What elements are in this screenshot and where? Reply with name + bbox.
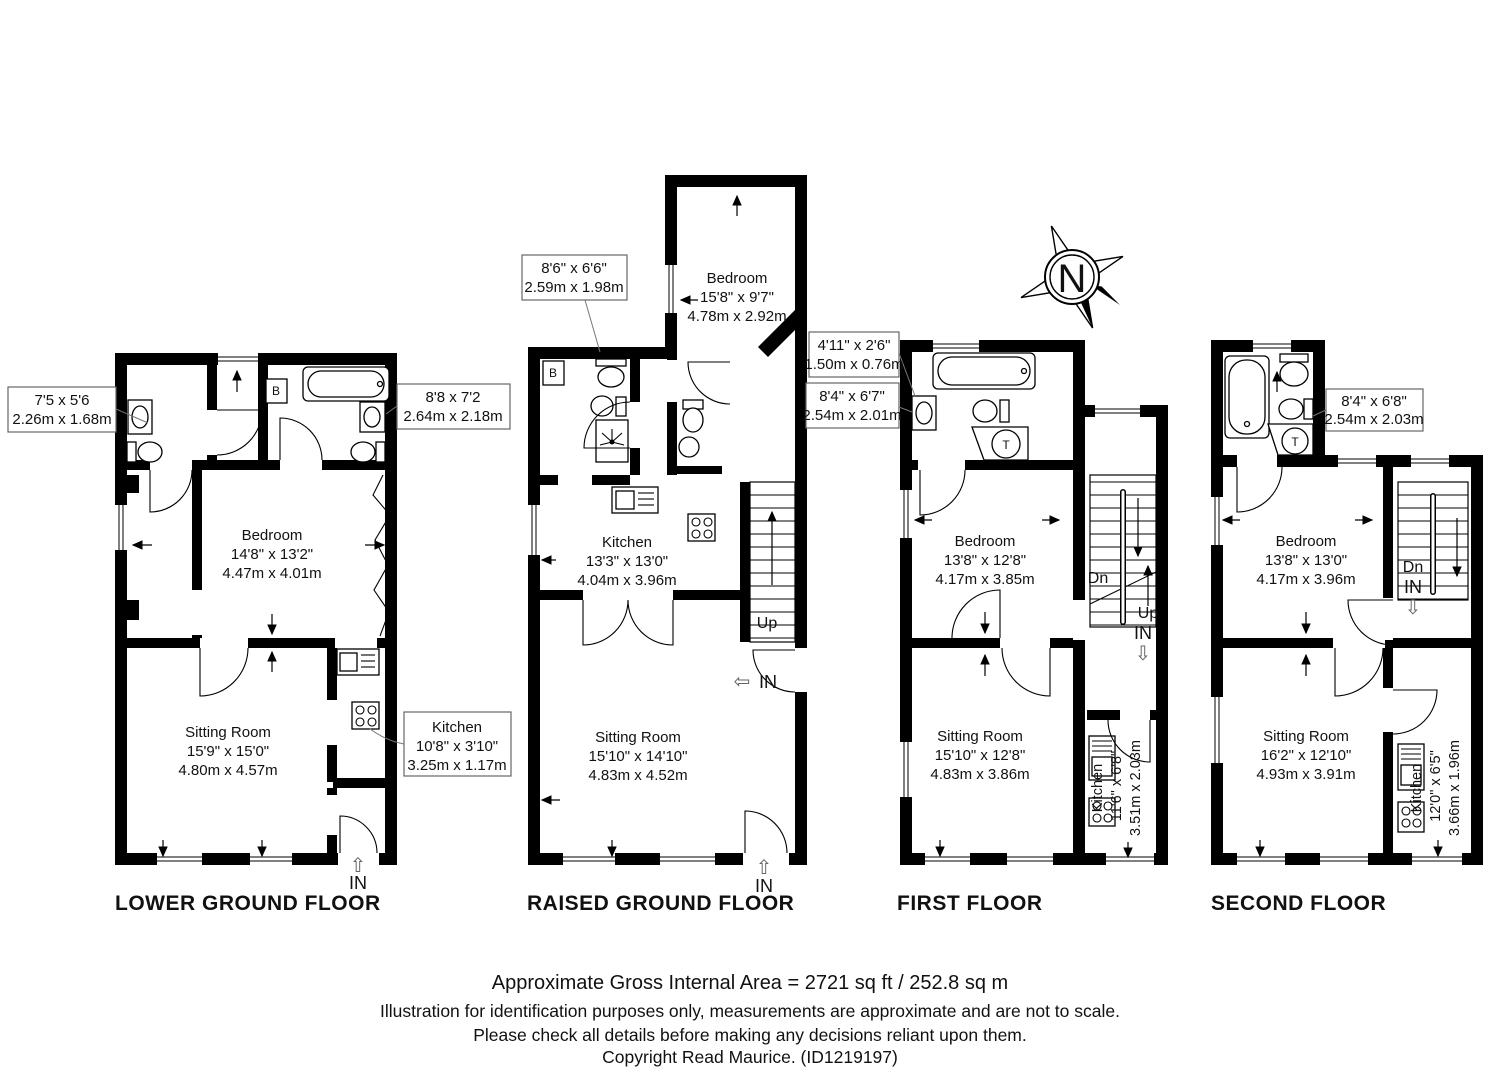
room-name: Kitchen xyxy=(1090,764,1106,812)
hob-icon xyxy=(688,514,715,541)
stairs-up-label: Up xyxy=(757,615,778,632)
stairs-up-label: Up xyxy=(1138,605,1159,622)
callout-imperial: 8'6" x 6'6" xyxy=(541,260,607,277)
sink-icon xyxy=(360,402,385,432)
entrance-arrow-icon: ⇩ xyxy=(1405,595,1422,619)
sink-icon xyxy=(912,396,936,430)
callout-imperial: 7'5 x 5'6 xyxy=(35,392,90,409)
entrance-label: IN xyxy=(1134,623,1152,643)
toilet-icon xyxy=(591,396,626,416)
room-imperial: 16'2" x 12'10" xyxy=(1261,747,1352,764)
callout-metric: 2.54m x 2.01m xyxy=(802,407,901,424)
entrance-side-arrow-icon: ⇦ xyxy=(734,669,751,693)
room-name: Bedroom xyxy=(242,527,303,544)
callout-bath-right: 8'8 x 7'2 2.64m x 2.18m xyxy=(386,384,510,429)
stairs-dn-label: Dn xyxy=(1403,559,1423,576)
room-imperial: 11'6" x 6'8" xyxy=(1109,751,1125,821)
toilet-icon xyxy=(1279,399,1313,419)
tank-label: T xyxy=(1291,435,1299,449)
interior-walls xyxy=(127,365,397,853)
outer-walls xyxy=(115,353,397,865)
callout-imperial: 10'8" x 3'10" xyxy=(416,738,498,755)
floor-label: FIRST FLOOR xyxy=(897,892,1043,915)
room-imperial: 15'9" x 15'0" xyxy=(187,743,269,760)
room-imperial: 13'3" x 13'0" xyxy=(586,553,668,570)
callout-imperial: 4'11" x 2'6" xyxy=(818,337,891,354)
gross-internal-area: Approximate Gross Internal Area = 2721 s… xyxy=(492,972,1008,994)
callout-imperial: 8'4" x 6'7" xyxy=(819,388,885,405)
disclaimer-line-1: Illustration for identification purposes… xyxy=(380,1001,1120,1021)
sink-icon xyxy=(596,359,626,387)
callout-metric: 1.50m x 0.76m xyxy=(804,356,903,373)
callout-bathroom: 8'4" x 6'7" 2.54m x 2.01m xyxy=(802,383,912,428)
room-imperial: 13'8" x 12'8" xyxy=(944,552,1026,569)
room-imperial: 12'0" x 6'5" xyxy=(1428,750,1444,821)
callout-metric: 3.25m x 1.17m xyxy=(407,757,506,774)
floor-plan-lower-ground: B xyxy=(8,353,511,915)
callout-imperial: 8'8 x 7'2 xyxy=(426,389,481,406)
boiler-icon: B xyxy=(543,361,564,385)
floor-plan-raised-ground: B xyxy=(522,175,807,915)
tank-label: T xyxy=(1002,438,1010,452)
room-imperial: 13'8" x 13'0" xyxy=(1265,552,1347,569)
sink-icon xyxy=(1280,354,1308,386)
entrance-label: IN xyxy=(349,873,367,893)
room-name: Bedroom xyxy=(955,533,1016,550)
room-name: Bedroom xyxy=(707,270,768,287)
entrance-arrow-icon: ⇩ xyxy=(1135,641,1152,665)
callout-metric: 2.59m x 1.98m xyxy=(524,279,623,296)
floor-label: LOWER GROUND FLOOR xyxy=(115,892,381,915)
callout-imperial: 8'4" x 6'8" xyxy=(1341,393,1407,410)
room-metric: 4.83m x 3.86m xyxy=(930,766,1029,783)
toilet-icon xyxy=(351,442,385,462)
callout-metric: 2.64m x 2.18m xyxy=(403,408,502,425)
room-name: Sitting Room xyxy=(937,728,1023,745)
room-name: Kitchen xyxy=(602,534,652,551)
floor-label: RAISED GROUND FLOOR xyxy=(527,892,794,915)
kitchen-sink-icon xyxy=(337,649,379,675)
bathtub-icon xyxy=(303,367,389,401)
door-openings xyxy=(150,410,379,865)
entrance-label: IN xyxy=(1404,577,1422,597)
room-imperial: 15'10" x 12'8" xyxy=(935,747,1026,764)
floorplan-page: B xyxy=(0,0,1495,1080)
room-metric: 4.93m x 3.91m xyxy=(1256,766,1355,783)
callout-name: Kitchen xyxy=(432,719,482,736)
room-name: Sitting Room xyxy=(185,724,271,741)
callout-metric: 2.26m x 1.68m xyxy=(12,411,111,428)
floor-plan-second: T Bedroom 13'8" x 13'0" 4.17m x 3.96m Si… xyxy=(1211,340,1483,915)
bathtub-icon xyxy=(1225,356,1269,438)
door-openings xyxy=(1237,455,1393,732)
callout-bathroom: 8'4" x 6'8" 2.54m x 2.03m xyxy=(1313,389,1424,431)
stairs-dn-label: Dn xyxy=(1088,570,1108,587)
boiler-icon: B xyxy=(266,379,287,403)
room-metric: 4.78m x 2.92m xyxy=(687,308,786,325)
floorplan-image: B xyxy=(0,0,1495,1080)
boiler-label: B xyxy=(549,366,557,380)
room-metric: 4.80m x 4.57m xyxy=(178,762,277,779)
toilet-icon xyxy=(973,400,1009,422)
disclaimer-line-2: Please check all details before making a… xyxy=(473,1025,1027,1045)
copyright: Copyright Read Maurice. (ID1219197) xyxy=(602,1047,898,1067)
room-imperial: 15'8" x 9'7" xyxy=(700,289,774,306)
hob-icon xyxy=(352,702,379,729)
entrance-side-label: IN xyxy=(759,672,777,692)
room-name: Sitting Room xyxy=(595,729,681,746)
room-metric: 3.66m x 1.96m xyxy=(1447,740,1463,836)
shower-icon xyxy=(596,420,628,462)
room-metric: 4.17m x 3.96m xyxy=(1256,571,1355,588)
room-metric: 4.17m x 3.85m xyxy=(935,571,1034,588)
room-imperial: 15'10" x 14'10" xyxy=(589,748,688,765)
room-name: Bedroom xyxy=(1276,533,1337,550)
footer: Approximate Gross Internal Area = 2721 s… xyxy=(380,972,1120,1067)
toilet-icon xyxy=(679,400,703,457)
boiler-label: B xyxy=(272,384,280,398)
room-name: Sitting Room xyxy=(1263,728,1349,745)
floor-label: SECOND FLOOR xyxy=(1211,892,1386,915)
floor-plan-first: T Bedroom 13'8" x 12'8" 4.17m x 3.85m Si… xyxy=(802,332,1168,915)
tank-cupboard-icon: T xyxy=(1268,424,1313,455)
room-metric: 4.83m x 4.52m xyxy=(588,767,687,784)
toilet-icon xyxy=(127,442,162,462)
room-imperial: 14'8" x 13'2" xyxy=(231,546,313,563)
kitchen-sink-icon xyxy=(612,487,658,513)
sink-icon xyxy=(128,400,152,434)
compass-icon: N xyxy=(1000,205,1143,348)
callout-metric: 2.54m x 2.03m xyxy=(1324,411,1423,428)
compass-north-label: N xyxy=(1058,257,1087,301)
bathtub-icon xyxy=(933,353,1035,389)
room-metric: 4.04m x 3.96m xyxy=(577,572,676,589)
room-metric: 3.51m x 2.03m xyxy=(1128,740,1144,836)
tank-cupboard-icon: T xyxy=(972,427,1028,460)
room-metric: 4.47m x 4.01m xyxy=(222,565,321,582)
room-name: Kitchen xyxy=(1409,764,1425,812)
callout-shower-room: 8'6" x 6'6" 2.59m x 1.98m xyxy=(522,255,627,352)
